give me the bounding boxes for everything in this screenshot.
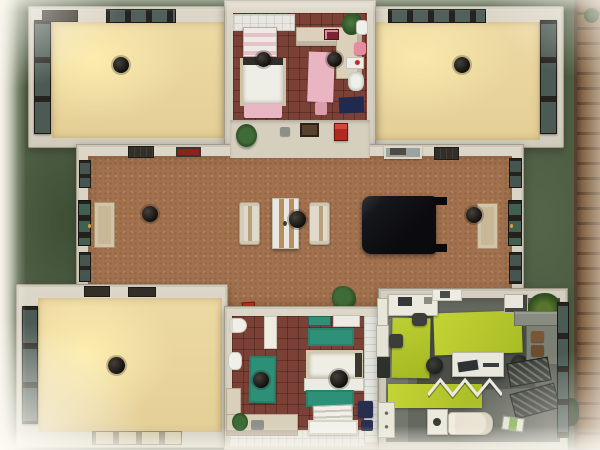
vignette-overlay xyxy=(0,0,600,450)
overlay-layer xyxy=(0,0,600,450)
floorplan-canvas xyxy=(0,0,600,450)
